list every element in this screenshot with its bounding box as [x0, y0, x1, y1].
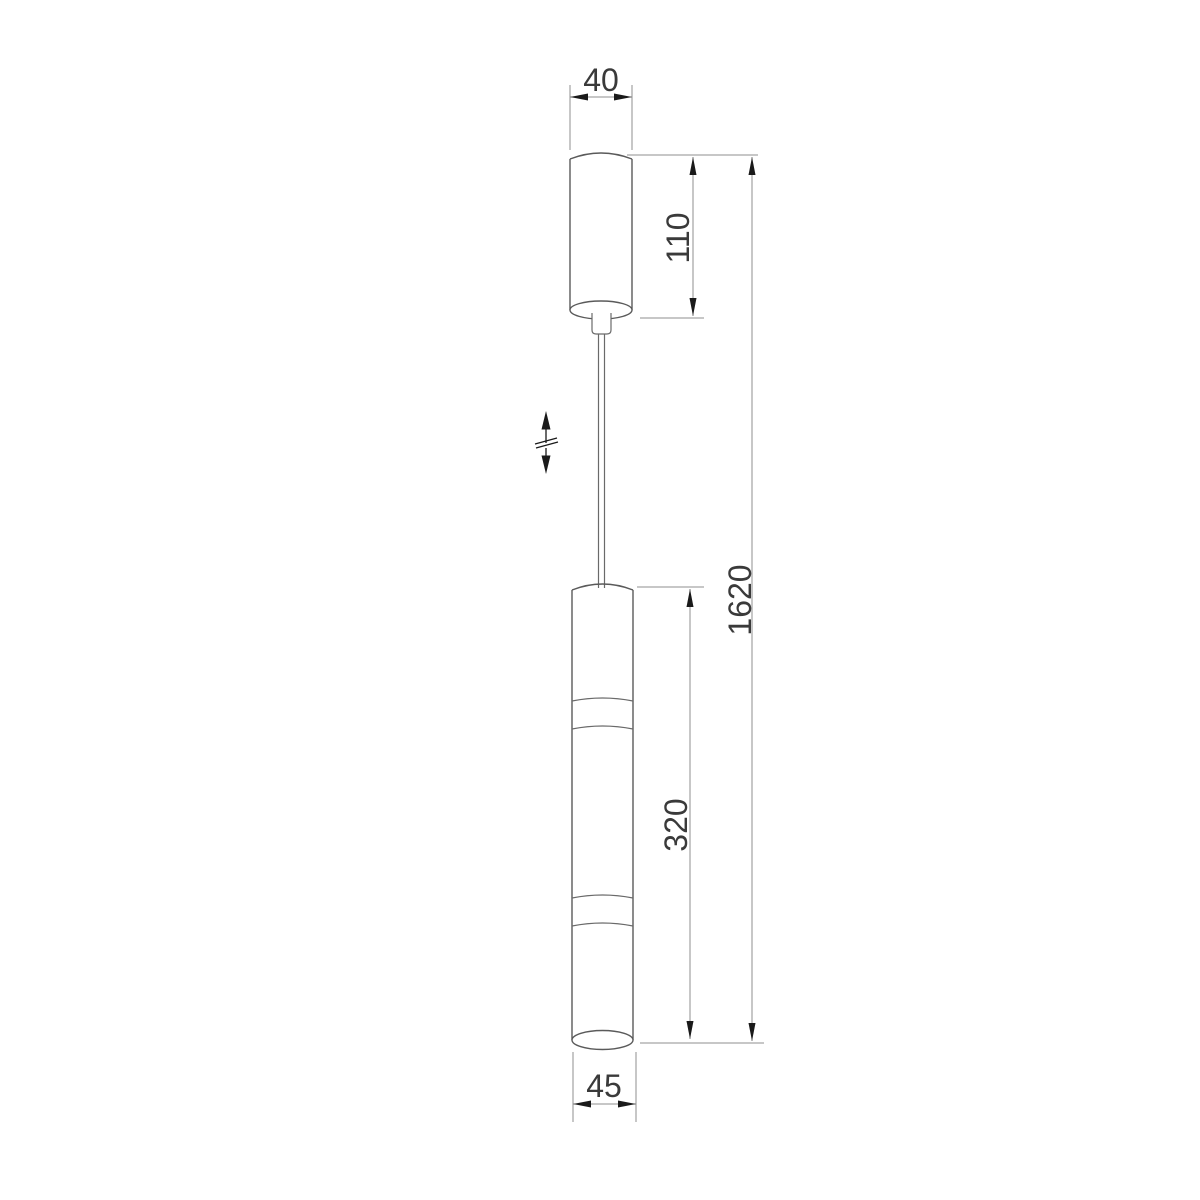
- cable-grip-connector: [592, 313, 611, 334]
- arrowhead-up: [690, 157, 697, 175]
- lamp-upper-band-bottom: [572, 726, 633, 729]
- technical-drawing: 40 110 1620 320 45: [0, 0, 1200, 1200]
- height-adjustable-icon: [535, 411, 558, 474]
- dimension-canopy-height: 110: [627, 155, 758, 318]
- dimension-label-overall-height: 1620: [722, 564, 758, 635]
- down-arrow-head: [542, 456, 551, 475]
- arrowhead-down: [749, 1023, 756, 1041]
- dimension-label-body-height: 320: [658, 798, 694, 851]
- dimension-body-width: 45: [573, 1052, 636, 1122]
- drawing-canvas: 40 110 1620 320 45: [0, 0, 1200, 1200]
- dimension-canopy-width: 40: [570, 62, 632, 150]
- lamp-top-edge: [572, 584, 633, 590]
- dimension-label-canopy-height: 110: [660, 212, 696, 263]
- lamp-body: [572, 584, 633, 1050]
- lamp-upper-band-top: [572, 698, 633, 701]
- lamp-bottom-ellipse: [572, 1031, 633, 1050]
- arrowhead-up: [749, 157, 756, 175]
- lamp-lower-band-top: [572, 895, 633, 898]
- suspension-cable: [599, 334, 605, 588]
- canopy-top-edge: [570, 153, 632, 159]
- lamp-lower-band-bottom: [572, 923, 633, 926]
- up-arrow-head: [542, 411, 551, 430]
- dimension-body-height: 320: [637, 587, 704, 1039]
- dimension-label-canopy-width: 40: [583, 62, 619, 98]
- canopy: [570, 153, 632, 334]
- arrowhead-down: [690, 298, 697, 316]
- dimension-label-body-width: 45: [586, 1068, 622, 1104]
- arrowhead-up: [687, 589, 694, 607]
- dimension-overall-height: 1620: [640, 157, 764, 1043]
- arrowhead-down: [687, 1021, 694, 1039]
